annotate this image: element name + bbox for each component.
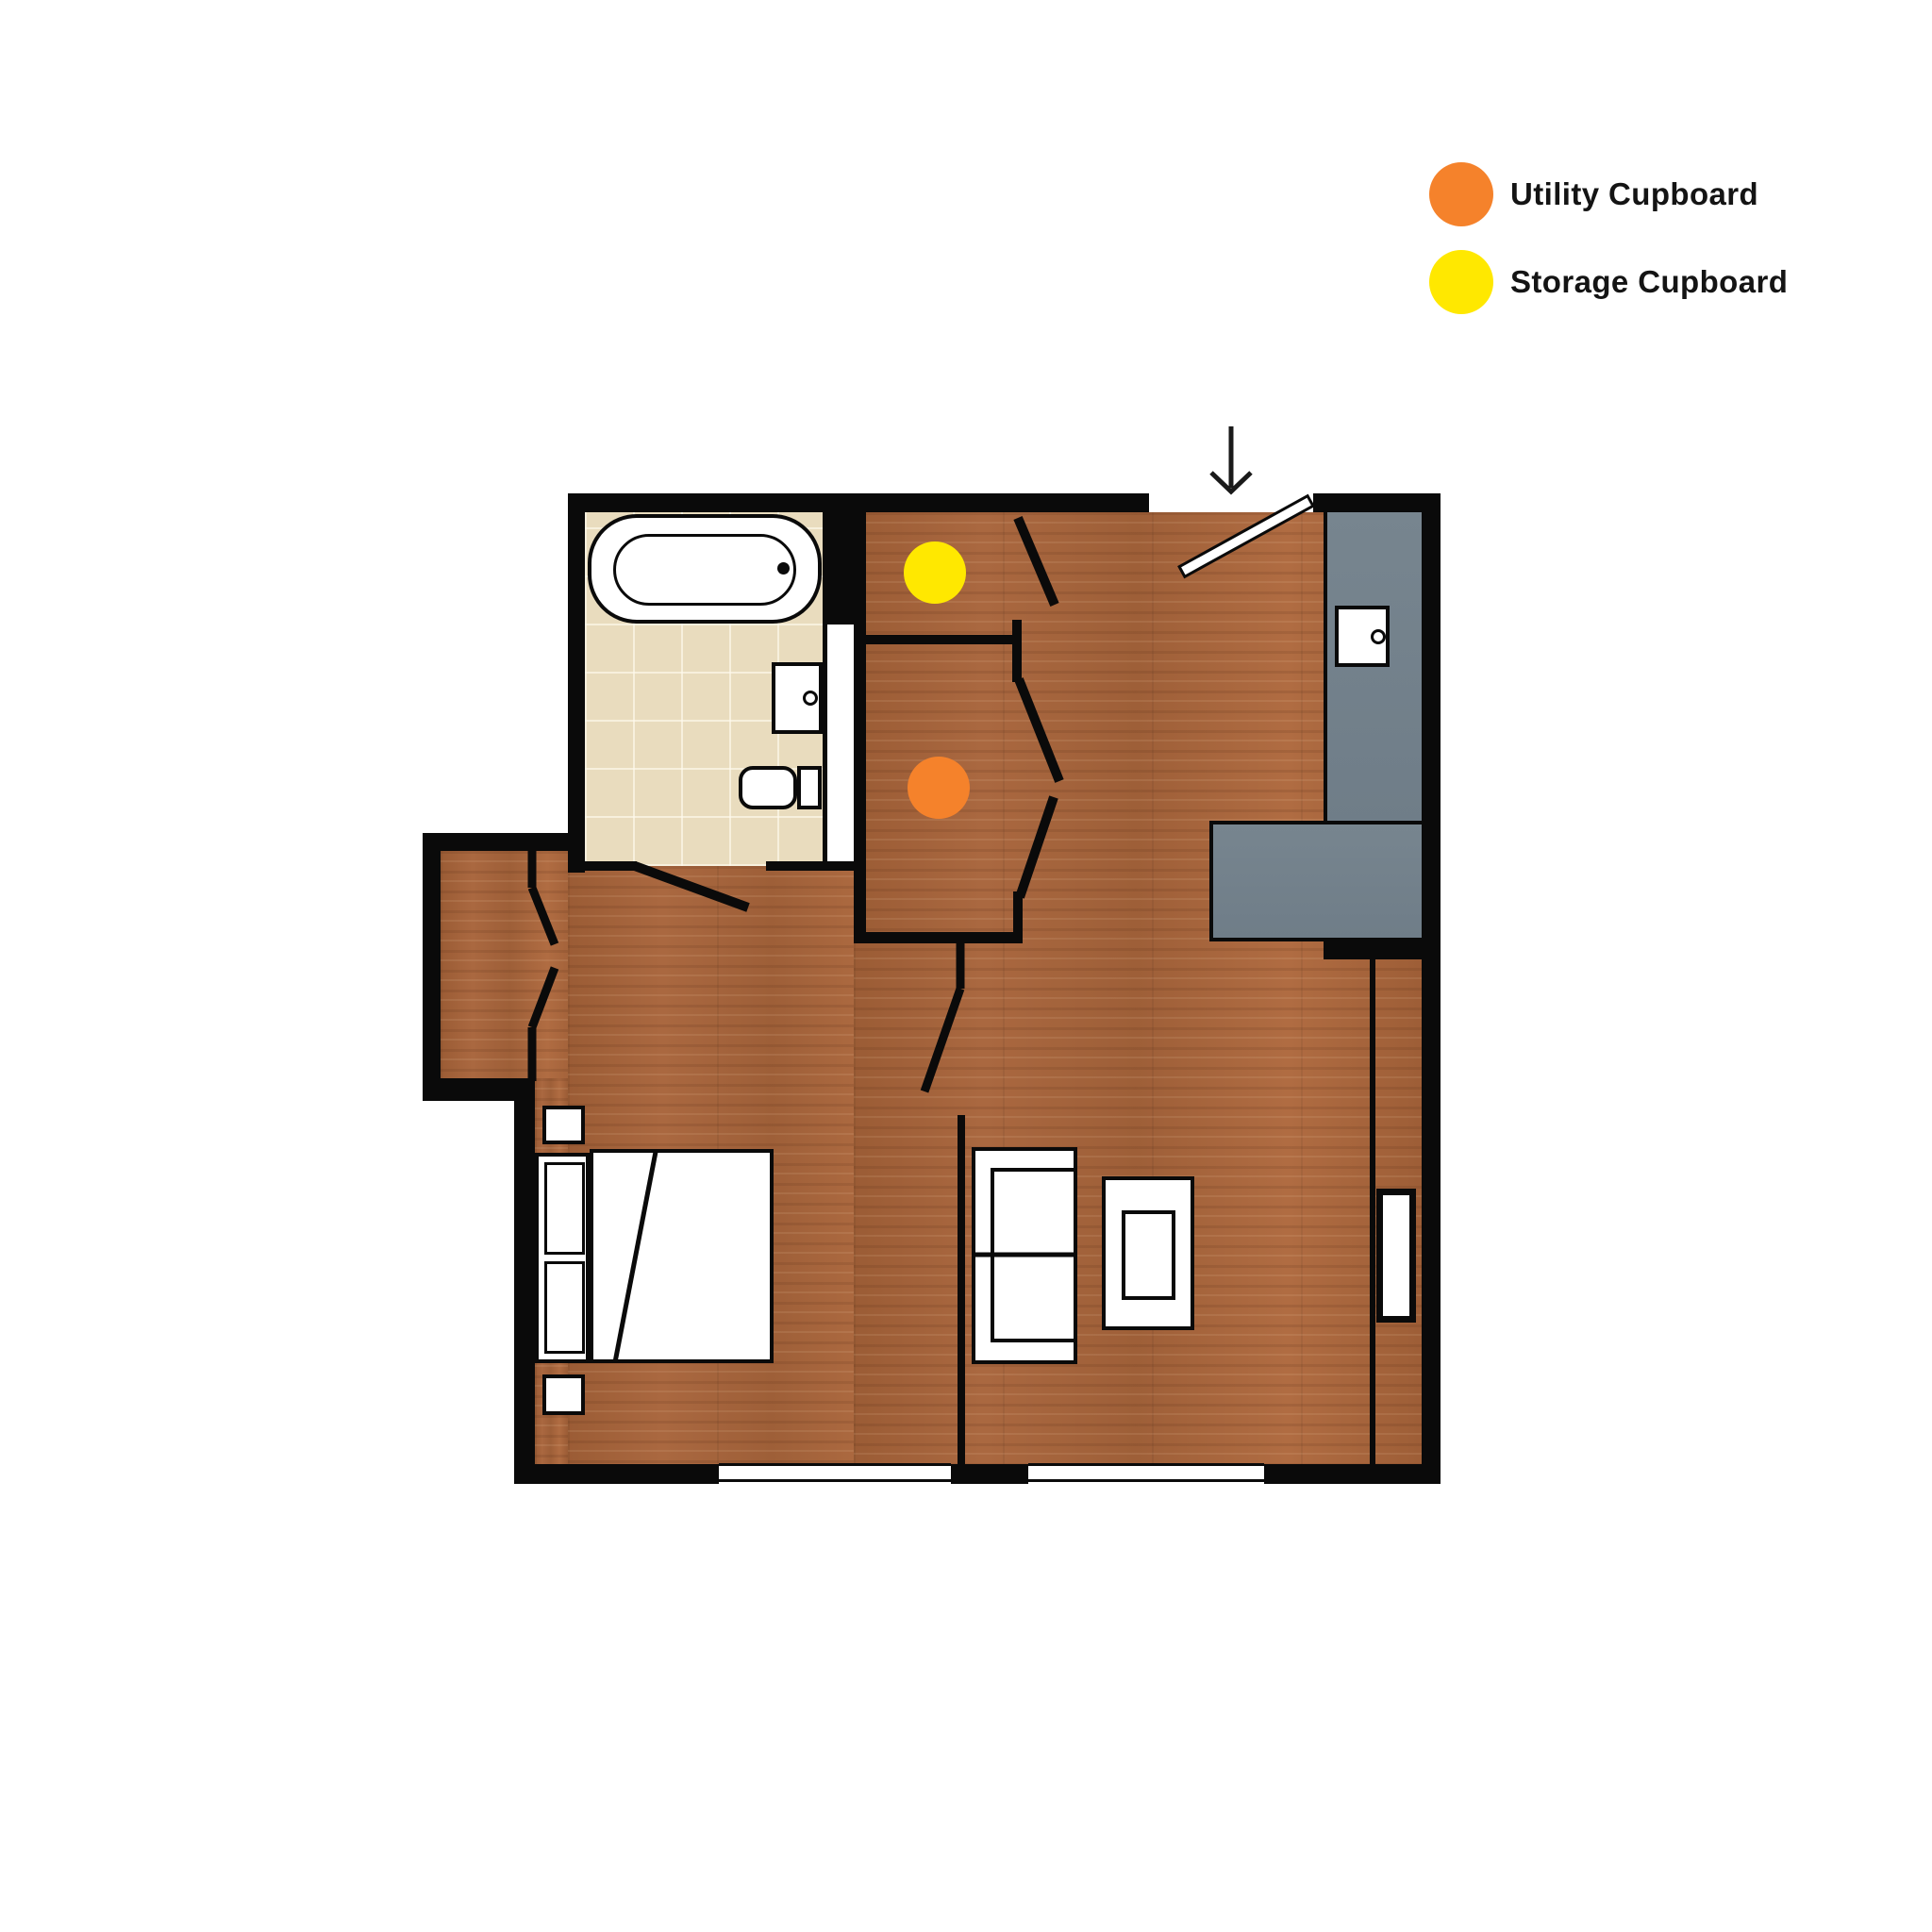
bathtub-inner-rim	[613, 534, 796, 606]
wall-between-cupboards	[854, 635, 1022, 644]
wall-bathroom-right	[823, 493, 854, 625]
legend: Utility Cupboard Storage Cupboard	[1429, 162, 1788, 314]
bedroom-floor-notch	[441, 851, 585, 1078]
wall-left-outer	[423, 833, 441, 1101]
bathroom-door-gap-edge	[823, 625, 827, 866]
bed-pillow-bottom	[544, 1261, 585, 1354]
wall-bathroom-bottom-1	[568, 861, 637, 871]
wall-bottom-2	[951, 1464, 1028, 1484]
nightstand-icon	[542, 1106, 585, 1144]
coffee-table-inner	[1122, 1210, 1175, 1300]
wall-bathroom-bottom-2	[766, 861, 866, 871]
storage-cupboard-marker	[904, 541, 966, 604]
sink-tap	[803, 691, 818, 706]
bathroom-door-gap	[827, 625, 854, 864]
legend-item-storage-cupboard: Storage Cupboard	[1429, 250, 1788, 314]
kitchen-counter-l-icon	[1209, 821, 1422, 941]
toilet-cistern	[797, 766, 822, 809]
wall-kitchen-band	[1324, 941, 1441, 959]
wall-left-lower	[514, 1078, 535, 1484]
kitchen-sink-knob	[1371, 629, 1386, 644]
wall-bottom-1	[514, 1464, 719, 1484]
entry-arrow-head	[1211, 473, 1251, 491]
window-icon-bedroom	[719, 1463, 951, 1482]
bathtub-drain	[777, 562, 790, 575]
wall-bedroom-living-divider	[958, 1115, 965, 1464]
wall-cupboard-post	[1012, 620, 1022, 682]
utility-cupboard-marker	[908, 757, 970, 819]
floor-plan-page: Utility Cupboard Storage Cupboard	[0, 0, 1932, 1932]
sofa-seat	[991, 1168, 1077, 1342]
toilet-icon	[739, 766, 797, 809]
bed-pillow-top	[544, 1162, 585, 1255]
legend-item-utility-cupboard: Utility Cupboard	[1429, 162, 1788, 226]
legend-label-utility: Utility Cupboard	[1510, 176, 1758, 212]
wall-utility-bottom	[854, 932, 1023, 943]
storage-cupboard-swatch-icon	[1429, 250, 1493, 314]
wall-bottom-3	[1264, 1464, 1441, 1484]
wall-cupboards-left	[854, 493, 866, 943]
double-bed-icon	[590, 1149, 774, 1363]
wall-bathroom-left	[568, 493, 585, 873]
window-icon-living	[1028, 1463, 1264, 1482]
legend-label-storage: Storage Cupboard	[1510, 264, 1788, 300]
wall-kitchen-niche	[1370, 959, 1375, 1464]
radiator-icon	[1376, 1189, 1416, 1323]
wall-right	[1422, 493, 1441, 1484]
nightstand-icon-2	[542, 1374, 585, 1415]
utility-cupboard-swatch-icon	[1429, 162, 1493, 226]
kitchen-counter-icon	[1324, 512, 1422, 824]
wall-notch-top	[423, 833, 568, 851]
